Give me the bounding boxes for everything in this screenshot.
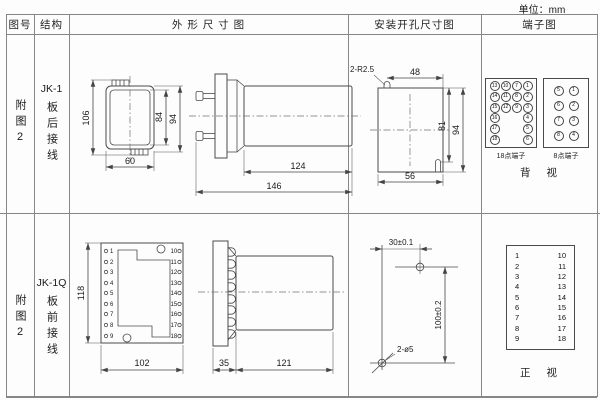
- model-name: JK-1Q: [37, 277, 67, 289]
- front-terminal-no: 12: [171, 270, 178, 276]
- terminal-no: 2: [515, 263, 541, 271]
- terminal-point: 3: [569, 116, 579, 126]
- terminal-no: 1: [515, 252, 541, 260]
- terminal-point: 16: [490, 113, 500, 123]
- figure-no-text: 附图2: [12, 294, 28, 343]
- side-view-dimensions: 124 146: [196, 142, 352, 196]
- terminal-no: 14: [558, 294, 566, 302]
- dim-width: 102: [134, 358, 149, 368]
- wiring-type: 板前接线: [44, 295, 60, 359]
- terminal-point: 4: [569, 131, 579, 141]
- header-install-dims: 安装开孔尺寸图: [348, 15, 481, 33]
- terminal-no: 5: [515, 294, 541, 302]
- terminal-point: 6: [523, 135, 533, 145]
- terminal-point: 6: [554, 101, 564, 111]
- front-terminal-no: 11: [171, 260, 178, 266]
- header-outline-dims: 外 形 尺 寸 图: [69, 15, 348, 33]
- terminal-point: 11: [501, 92, 511, 102]
- unit-label: 单位：mm: [492, 1, 592, 13]
- terminal-block-8pt-label: 8点端子: [541, 151, 591, 161]
- front-terminal-no: 6: [110, 302, 114, 308]
- terminal-point: 18: [490, 135, 500, 145]
- terminal-point: 3: [523, 103, 533, 113]
- front-terminal-no: 13: [171, 281, 178, 287]
- terminal-point: 5: [523, 124, 533, 134]
- terminal-point: 9: [512, 103, 522, 113]
- terminal-point: 7: [554, 116, 564, 126]
- dim-inner-height: 81: [437, 121, 447, 131]
- terminal-block-18pt: 13 14 15 16 17 18 10 11 12 7 8 9 1 2 3 4…: [485, 78, 537, 148]
- dim-hole-spacing-x: 30±0.1: [389, 238, 414, 247]
- terminal-no: 18: [558, 335, 566, 343]
- front-terminal-no: 1: [110, 249, 114, 255]
- dim-top-width: 48: [410, 67, 420, 77]
- terminal-point: 5: [554, 86, 564, 96]
- structure-row2: JK-1Q 板前接线: [34, 213, 69, 397]
- terminal-no: 8: [515, 325, 541, 333]
- front-view-dimensions: 106 84 94 60: [81, 80, 183, 171]
- terminal-point: 12: [501, 103, 511, 113]
- side-view-relay: [189, 74, 361, 158]
- terminal-no: 13: [558, 283, 566, 291]
- terminal-point: 8: [512, 92, 522, 102]
- terminal-point: 10: [501, 81, 511, 91]
- terminal-no: 15: [558, 304, 566, 312]
- figure-no-row2: 附图2: [6, 213, 34, 397]
- header-terminal-diagram: 端子图: [481, 15, 598, 33]
- slot-label: 2-R2.5: [350, 65, 375, 74]
- hole-dimensions: 30±0.1 100±0.2 2-ø5: [370, 238, 445, 363]
- dim-body-length: 124: [290, 161, 305, 171]
- front-terminal-no: 8: [110, 323, 114, 329]
- terminal-no: 6: [515, 304, 541, 312]
- terminal-point: 2: [569, 101, 579, 111]
- install-holes-drawing-jk1q: 30±0.1 100±0.2 2-ø5: [348, 213, 481, 397]
- view-label-front: 正 视: [481, 365, 598, 380]
- terminal-no: 11: [558, 263, 566, 271]
- front-terminal-no: 7: [110, 312, 114, 318]
- outline-drawing-jk1: 106 84 94 60 124: [69, 34, 348, 213]
- terminal-block-18pt-label: 18点端子: [483, 151, 539, 161]
- terminal-point: 17: [490, 124, 500, 134]
- cutout-dimensions: 2-R2.5 48 81 94 56: [350, 65, 466, 186]
- front-terminal-no: 14: [171, 291, 178, 297]
- front-terminal-no: 16: [171, 312, 178, 318]
- terminal-diagram-cell-jk1q: 1 10 2 11 3 12 4 13 5 14 6 15 7 16 8 17 …: [481, 213, 598, 397]
- hole-size-label: 2-ø5: [397, 345, 414, 354]
- front-terminal-no: 9: [110, 334, 114, 340]
- terminal-number-table: 1 10 2 11 3 12 4 13 5 14 6 15 7 16 8 17 …: [506, 245, 575, 350]
- front-terminal-no: 17: [171, 323, 178, 329]
- dim-outer-height: 94: [451, 125, 461, 135]
- dim-total-length: 146: [266, 181, 281, 191]
- terminal-no: 12: [558, 273, 566, 281]
- terminal-point: 13: [490, 81, 500, 91]
- terminal-no: 10: [558, 252, 566, 260]
- terminal-no: 7: [515, 314, 541, 322]
- dim-outer-height: 94: [168, 114, 178, 124]
- dim-body-length: 121: [276, 358, 291, 368]
- dim-inner-height: 84: [154, 112, 164, 122]
- outline-drawing-jk1q: 1 2 3 4 5 6 7 8 9 10 11 12 13 14 15 16 1…: [69, 213, 348, 397]
- terminal-point: 1: [569, 86, 579, 96]
- dim-hole-spacing-y: 100±0.2: [434, 300, 443, 329]
- figure-no-row1: 附图2: [6, 34, 34, 213]
- terminal-point: 2: [523, 92, 533, 102]
- terminal-no: 3: [515, 273, 541, 281]
- terminal-point: 15: [490, 103, 500, 113]
- front-view-q-dimensions: 118 102: [76, 243, 183, 374]
- terminal-point: 8: [554, 131, 564, 141]
- dim-height: 106: [81, 110, 91, 125]
- wiring-type: 板后接线: [44, 101, 60, 165]
- front-terminal-no: 4: [110, 281, 114, 287]
- terminal-block-8pt: 5 6 7 8 1 2 3 4: [543, 78, 589, 148]
- terminal-no: 17: [558, 325, 566, 333]
- terminal-no: 4: [515, 283, 541, 291]
- front-terminal-no: 10: [171, 249, 178, 255]
- datasheet-page: 单位：mm 图号 结构 外 形 尺 寸 图 安装开孔尺寸图 端子图 附图2 JK…: [0, 0, 600, 400]
- front-view-relay: [106, 76, 154, 161]
- dim-flange-depth: 35: [219, 358, 229, 368]
- terminal-point: 1: [523, 81, 533, 91]
- front-terminal-no: 5: [110, 291, 114, 297]
- terminal-point: 7: [512, 81, 522, 91]
- front-terminal-no: 15: [171, 302, 178, 308]
- header-structure: 结构: [34, 15, 69, 33]
- model-name: JK-1: [41, 83, 63, 95]
- front-view-relay-q: 1 2 3 4 5 6 7 8 9 10 11 12 13 14 15 16 1…: [101, 243, 183, 343]
- dim-height: 118: [76, 286, 86, 300]
- figure-no-text: 附图2: [12, 99, 28, 148]
- dim-width: 60: [125, 156, 135, 166]
- install-cutout-drawing-jk1: 2-R2.5 48 81 94 56: [348, 34, 481, 213]
- terminal-point: 14: [490, 92, 500, 102]
- terminal-diagram-cell-jk1: 13 14 15 16 17 18 10 11 12 7 8 9 1 2 3 4…: [481, 34, 598, 213]
- header-figure-no: 图号: [6, 15, 34, 33]
- terminal-point: 4: [523, 113, 533, 123]
- front-terminal-no: 3: [110, 270, 114, 276]
- view-label-rear: 背 视: [481, 165, 598, 180]
- front-terminal-no: 2: [110, 260, 114, 266]
- side-view-relay-q: [198, 241, 345, 346]
- dim-bottom-width: 56: [405, 171, 415, 181]
- front-terminal-no: 18: [171, 334, 178, 340]
- structure-row1: JK-1 板后接线: [34, 34, 69, 213]
- terminal-no: 16: [558, 314, 566, 322]
- terminal-no: 9: [515, 335, 541, 343]
